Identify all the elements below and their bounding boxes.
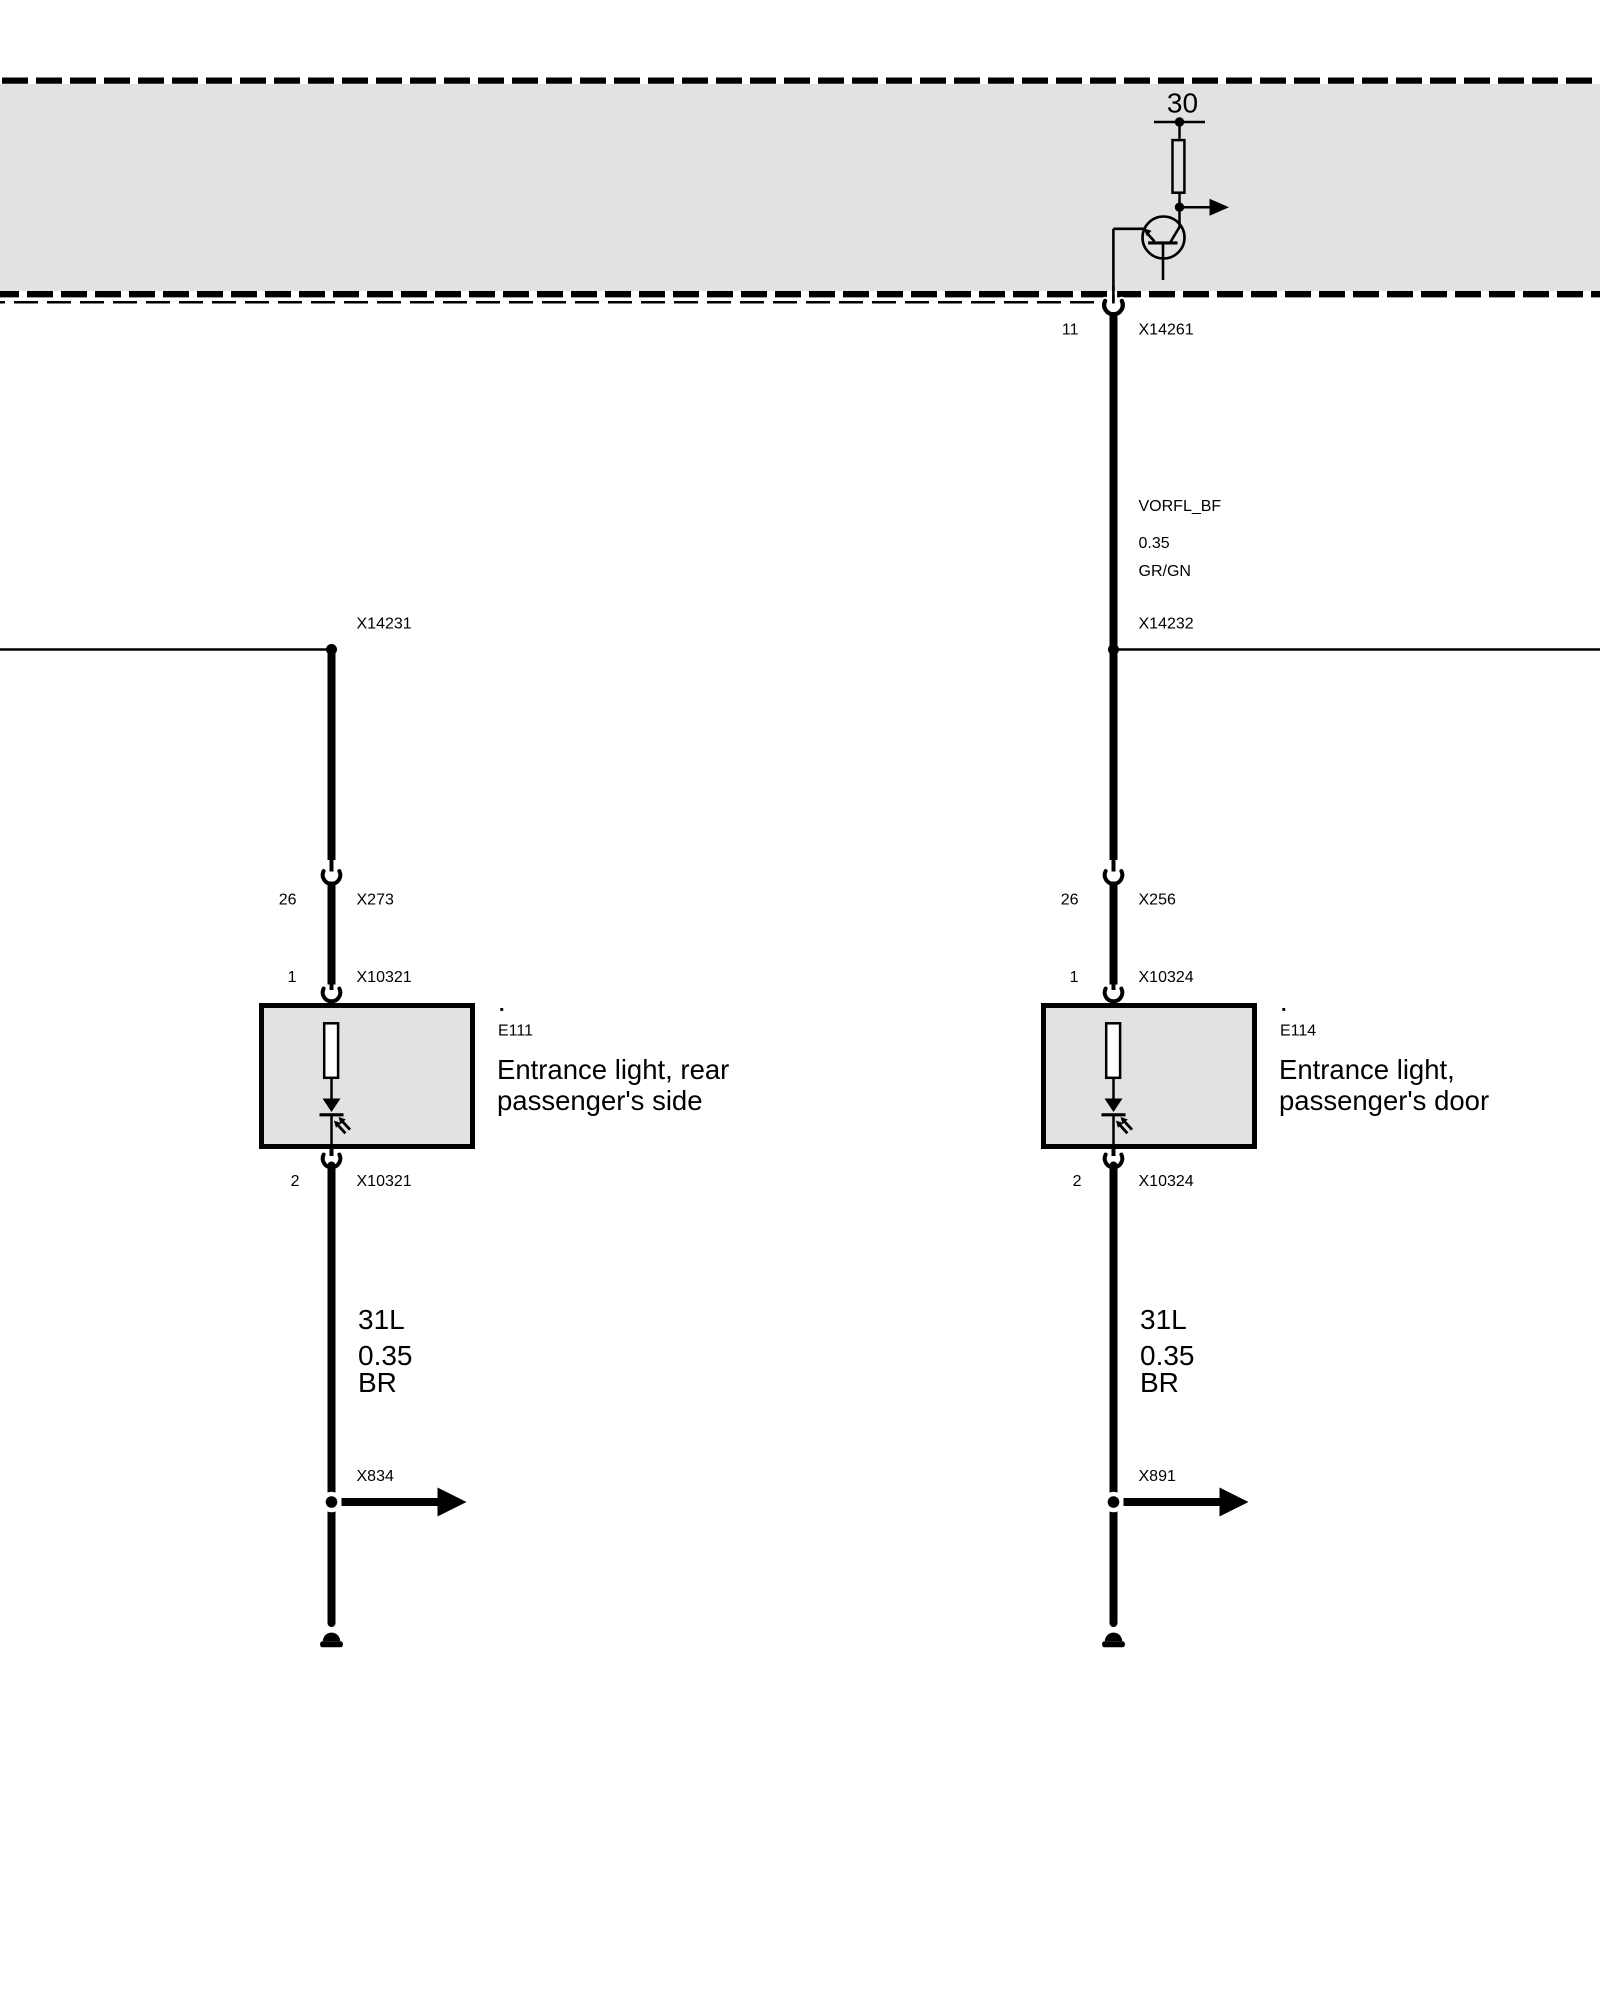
svg-text:passenger's side: passenger's side — [497, 1085, 703, 1116]
svg-text:1: 1 — [288, 969, 297, 986]
svg-text:26: 26 — [279, 892, 297, 909]
svg-text:X10321: X10321 — [357, 1173, 412, 1190]
svg-text:BR: BR — [1140, 1367, 1179, 1398]
svg-text:GR/GN: GR/GN — [1139, 563, 1191, 580]
svg-text:X10321: X10321 — [357, 969, 412, 986]
svg-text:X10324: X10324 — [1139, 969, 1194, 986]
svg-text:26: 26 — [1061, 892, 1079, 909]
svg-text:passenger's door: passenger's door — [1279, 1085, 1489, 1116]
svg-text:X256: X256 — [1139, 892, 1176, 909]
svg-text:1: 1 — [1070, 969, 1079, 986]
svg-text:0.35: 0.35 — [1139, 535, 1170, 552]
svg-text:X891: X891 — [1139, 1468, 1176, 1485]
svg-text:BR: BR — [358, 1367, 397, 1398]
svg-text:X14232: X14232 — [1139, 616, 1194, 633]
svg-text:2: 2 — [1073, 1173, 1082, 1190]
svg-text:X14231: X14231 — [357, 616, 412, 633]
svg-text:X14261: X14261 — [1139, 322, 1194, 339]
svg-text:X273: X273 — [357, 892, 394, 909]
svg-text:31L: 31L — [358, 1304, 405, 1335]
svg-text:Entrance light, rear: Entrance light, rear — [497, 1054, 729, 1085]
svg-text:VORFL_BF: VORFL_BF — [1139, 498, 1222, 515]
svg-text:E111: E111 — [498, 1022, 533, 1039]
svg-text:Entrance light,: Entrance light, — [1279, 1054, 1455, 1085]
svg-text:31L: 31L — [1140, 1304, 1187, 1335]
svg-text:X10324: X10324 — [1139, 1173, 1194, 1190]
svg-text:11: 11 — [1062, 322, 1079, 339]
svg-text:30: 30 — [1167, 88, 1198, 119]
svg-text:X834: X834 — [357, 1468, 394, 1485]
svg-text:2: 2 — [291, 1173, 300, 1190]
svg-text:E114: E114 — [1280, 1022, 1316, 1039]
